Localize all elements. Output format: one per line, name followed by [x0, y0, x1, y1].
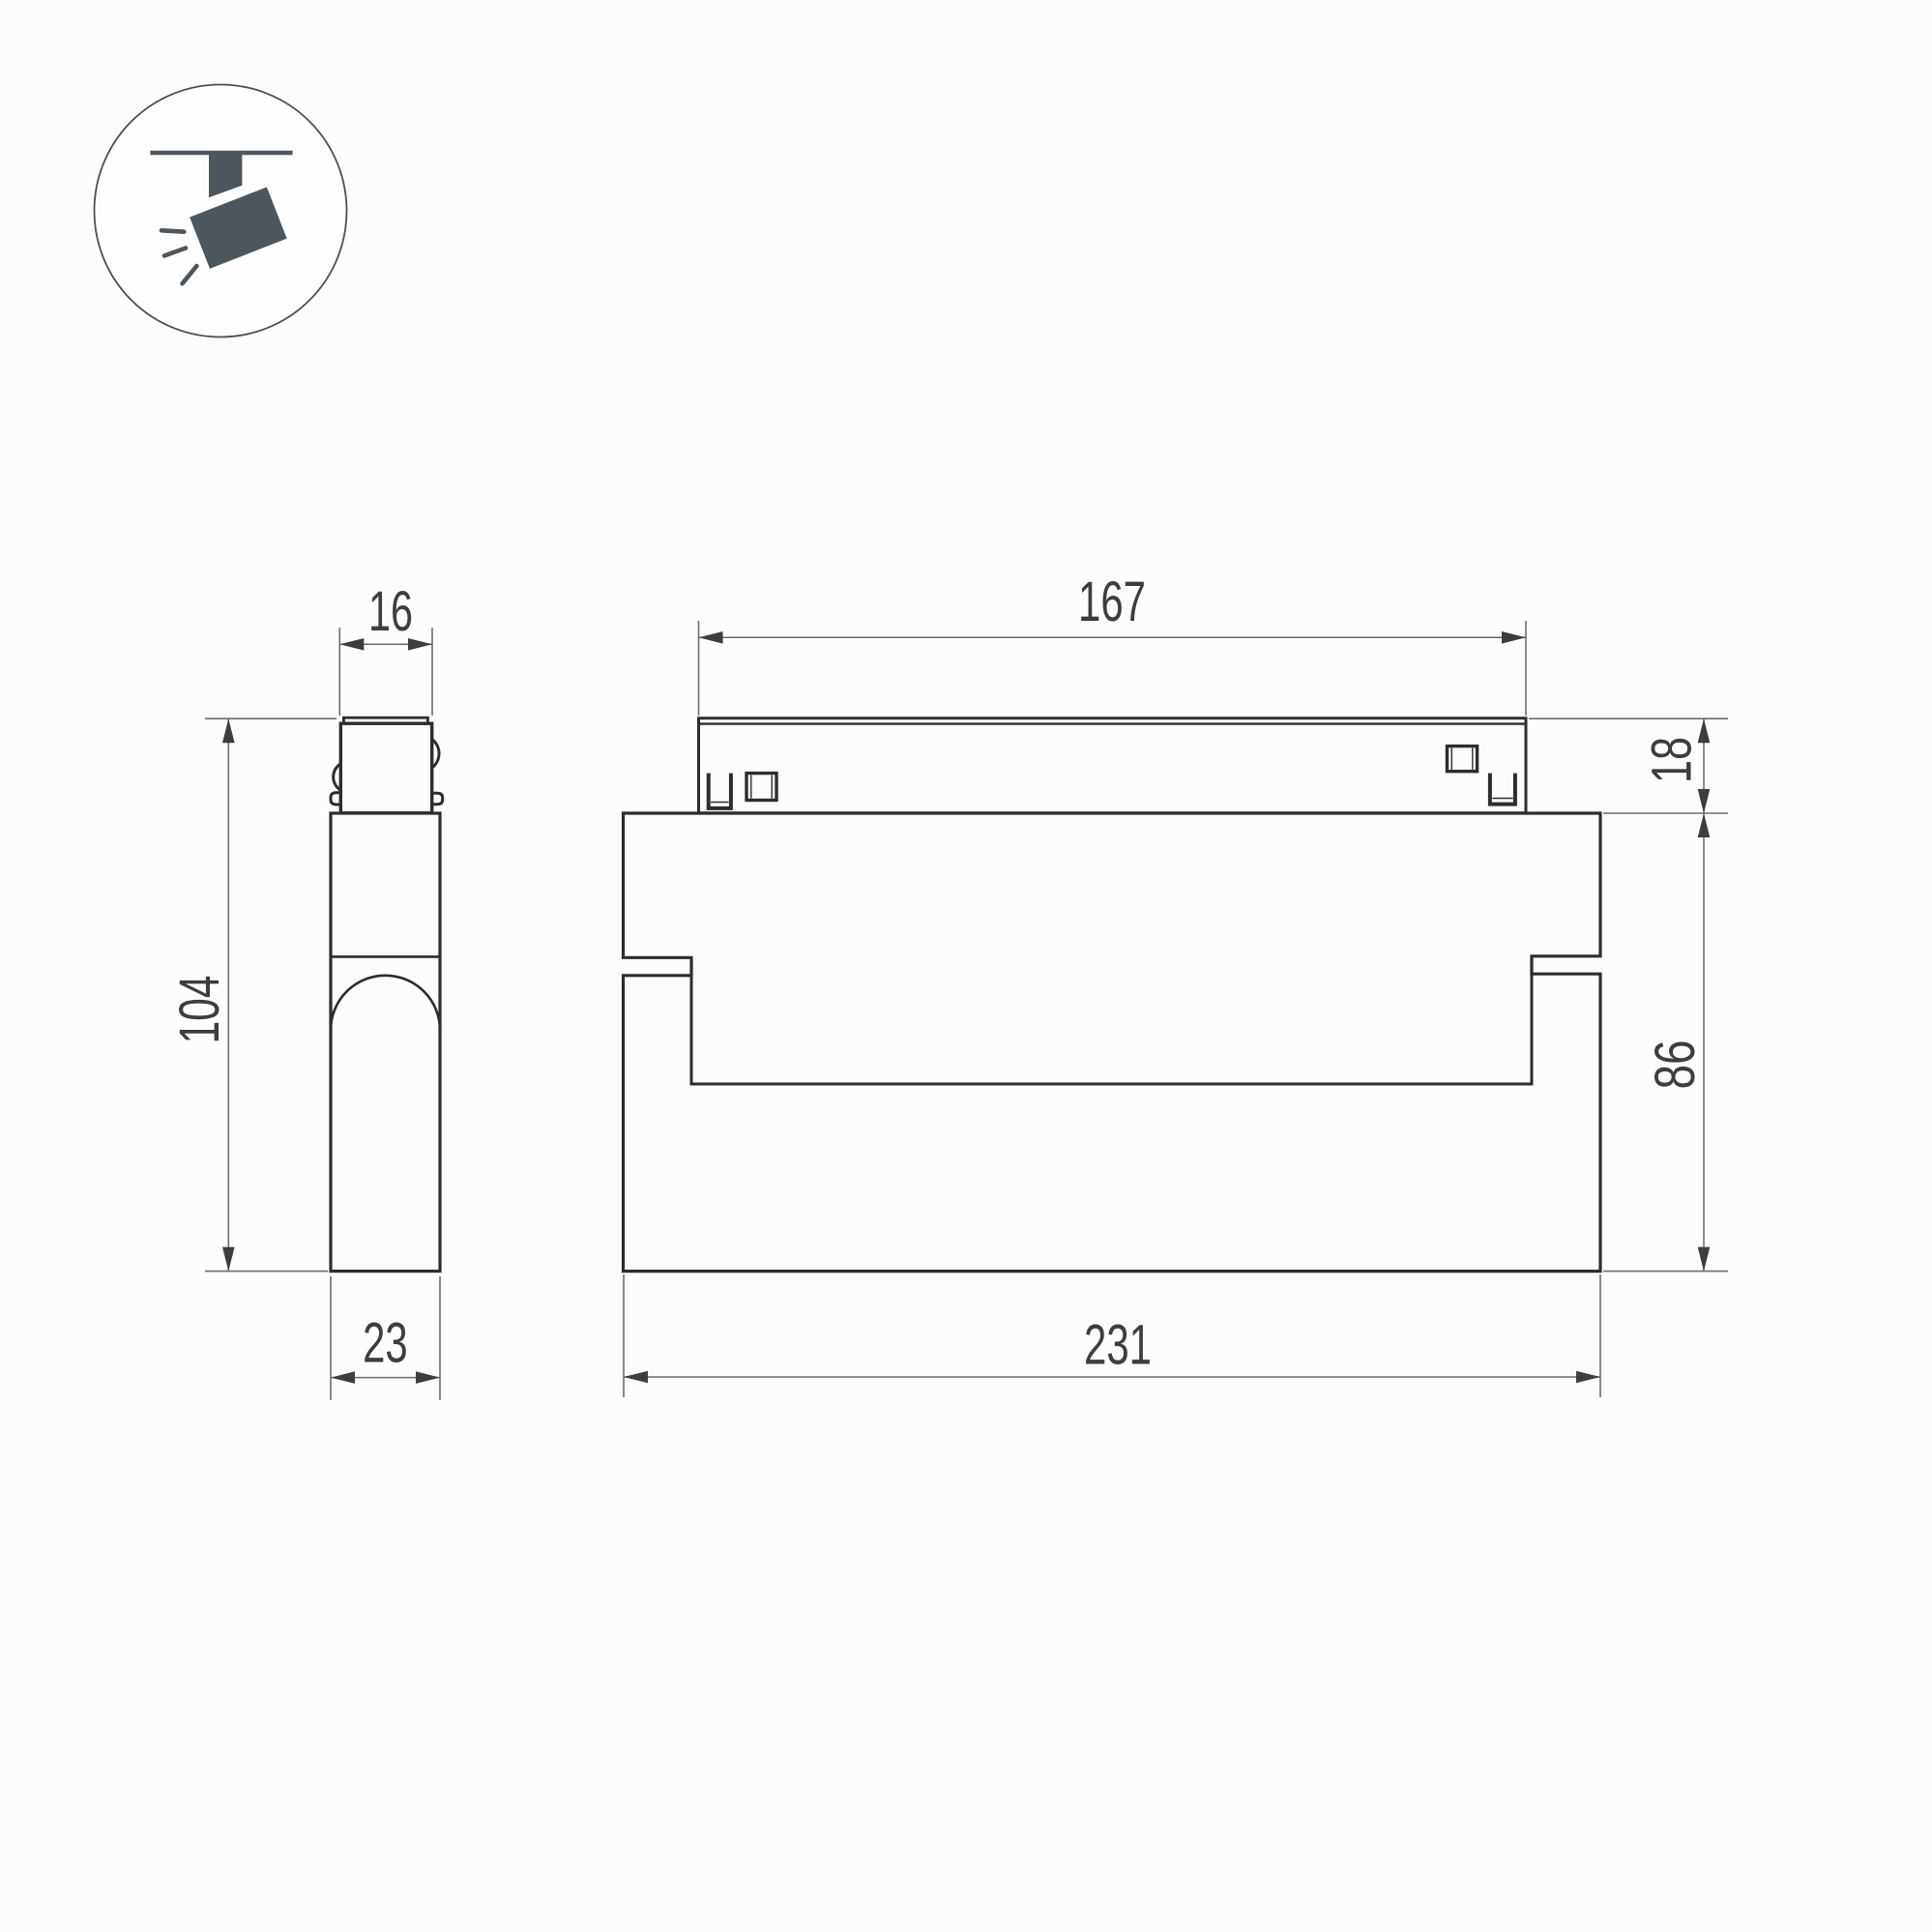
svg-text:104: 104 — [168, 976, 231, 1044]
svg-text:23: 23 — [363, 1311, 408, 1374]
svg-text:231: 231 — [1084, 1314, 1152, 1377]
svg-text:16: 16 — [368, 580, 413, 643]
svg-text:167: 167 — [1078, 571, 1146, 633]
svg-text:18: 18 — [1641, 737, 1704, 783]
svg-text:86: 86 — [1644, 1040, 1707, 1090]
